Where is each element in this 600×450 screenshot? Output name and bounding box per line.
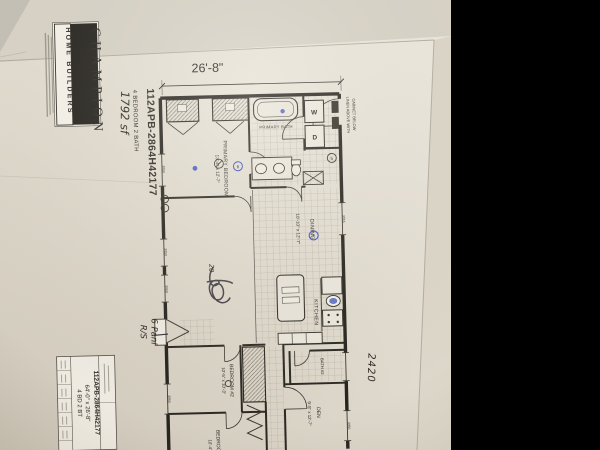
document-photo: CHAMPION HOME BUILDERS 112APB-2864H42177… — [0, 0, 600, 450]
photo-vignette — [0, 0, 452, 450]
screenshot-root: CHAMPION HOME BUILDERS 112APB-2864H42177… — [0, 0, 600, 450]
letterbox-right — [451, 0, 600, 450]
